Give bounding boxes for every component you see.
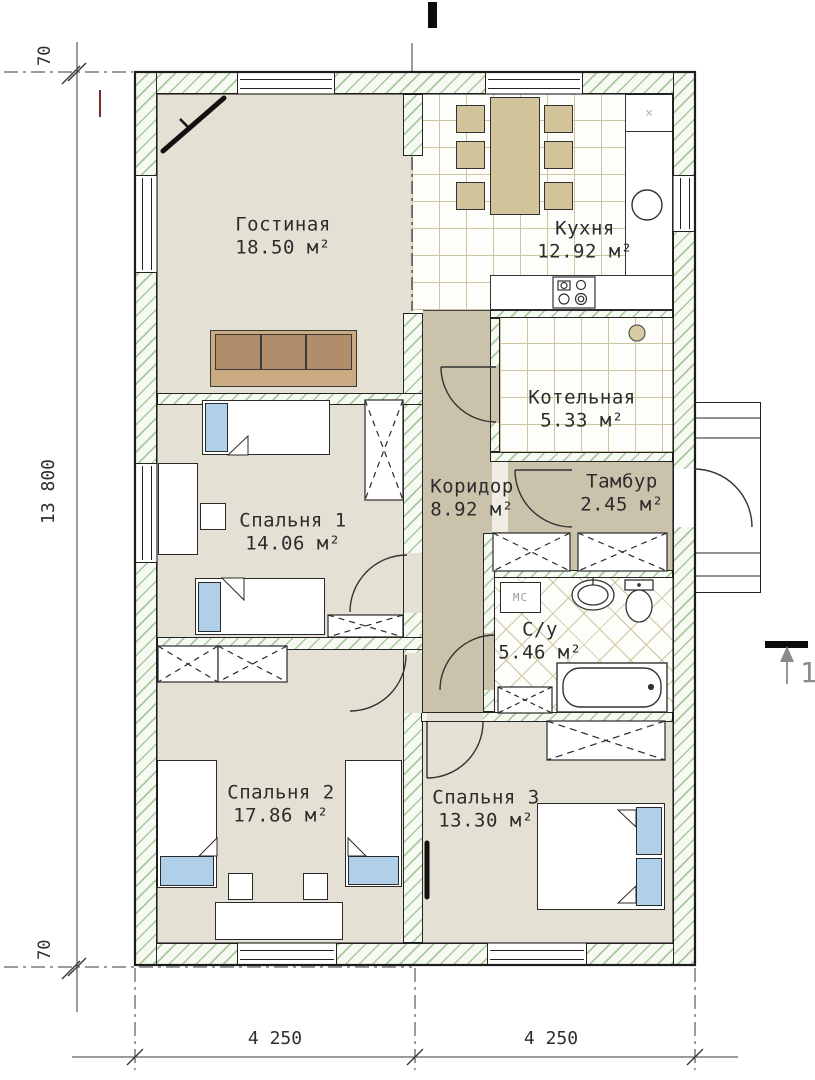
section-number: 1 (800, 656, 815, 689)
room-label-kitchen: Кухня 12.92 м² (537, 220, 633, 263)
dining-chair (544, 182, 573, 210)
sofa (210, 330, 357, 387)
door-gap-bedroom1 (404, 553, 422, 613)
dim-left-total: 13 800 (38, 459, 59, 524)
dining-chair (456, 105, 485, 133)
room-name: Тамбур (586, 473, 658, 493)
room-label-corridor: Коридор 8.92 м² (430, 478, 514, 521)
section-arrowhead (780, 646, 794, 662)
room-area: 17.86 м² (233, 807, 329, 827)
door-gap-boiler (491, 366, 499, 423)
wall-bedroom1-bedroom2 (157, 637, 423, 650)
washing-machine-label: МС (501, 583, 540, 612)
stool (303, 873, 328, 900)
window-left-living (135, 175, 157, 273)
sofa-cushions (215, 334, 352, 370)
dining-table (490, 97, 540, 215)
stool (228, 873, 253, 900)
desk (215, 902, 343, 940)
window-right-kitchen (673, 175, 695, 232)
bed-pillow (636, 807, 662, 855)
dining-chair (456, 182, 485, 210)
kitchen-counter-bottom (490, 275, 673, 310)
room-name: Коридор (430, 478, 514, 498)
boiler-room-floor (500, 318, 673, 452)
room-area: 5.33 м² (540, 412, 624, 432)
room-area: 5.46 м² (498, 644, 582, 664)
window-bottom-bedroom3 (487, 943, 587, 965)
room-area: 13.30 м² (438, 812, 534, 832)
room-name: С/у (522, 621, 558, 641)
bed-pillow (198, 582, 221, 632)
counter-cross-icon: × (626, 95, 672, 131)
wall-corridor-vertical (403, 313, 423, 943)
room-name: Кухня (555, 220, 615, 240)
room-name: Спальня 3 (432, 789, 539, 809)
window-top-kitchen (485, 72, 583, 94)
desk-chair (200, 503, 226, 530)
dining-chair (544, 141, 573, 169)
dim-bottom-offset: 70 (35, 940, 55, 960)
wall-boiler-vestibule (490, 452, 673, 462)
entrance-porch (695, 402, 761, 593)
window-top-living (237, 72, 335, 94)
dim-span-left: 4 250 (248, 1028, 302, 1049)
dim-span-right: 4 250 (524, 1028, 578, 1049)
window-left-bedroom1 (135, 463, 157, 563)
wall-exterior-top (135, 72, 695, 94)
room-label-bedroom3: Спальня 3 13.30 м² (432, 789, 539, 832)
room-area: 12.92 м² (537, 243, 633, 263)
wall-living-kitchen-stub (403, 94, 423, 156)
room-name: Спальня 2 (227, 784, 334, 804)
bed-pillow (636, 858, 662, 906)
room-label-bedroom2: Спальня 2 17.86 м² (227, 784, 334, 827)
room-label-boiler: Котельная 5.33 м² (528, 389, 635, 432)
room-name: Спальня 1 (239, 512, 346, 532)
dining-chair (456, 141, 485, 169)
kitchen-sink-unit: × (625, 94, 673, 132)
desk (158, 463, 198, 555)
wall-bathroom-top (483, 570, 673, 578)
room-area: 2.45 м² (580, 496, 664, 516)
section-mark-right (765, 641, 808, 648)
door-gap-bedroom2 (404, 653, 422, 713)
room-label-living: Гостиная 18.50 м² (235, 216, 331, 259)
wall-exterior-bottom (135, 943, 695, 965)
room-name: Гостиная (235, 216, 331, 236)
bed-pillow (205, 403, 228, 452)
dim-top-offset: 70 (35, 46, 55, 66)
washing-machine: МС (500, 582, 541, 613)
wall-kitchen-boiler (490, 310, 673, 318)
room-area: 14.06 м² (245, 535, 341, 555)
dining-chair (544, 105, 573, 133)
room-label-vestibule: Тамбур 2.45 м² (580, 473, 664, 516)
window-bottom-bedroom2 (237, 943, 337, 965)
floor-plan: × (0, 0, 815, 1080)
bed-blanket (348, 856, 399, 885)
door-gap-entrance (674, 469, 694, 527)
section-mark-top (428, 2, 437, 28)
room-area: 18.50 м² (235, 239, 331, 259)
room-label-bedroom1: Спальня 1 14.06 м² (239, 512, 346, 555)
bed-blanket (160, 856, 214, 886)
room-area: 8.92 м² (430, 501, 514, 521)
room-name: Котельная (528, 389, 635, 409)
room-label-bathroom: С/у 5.46 м² (498, 621, 582, 664)
door-gap-bedroom3 (427, 713, 483, 721)
door-gap-bathroom (484, 633, 494, 690)
